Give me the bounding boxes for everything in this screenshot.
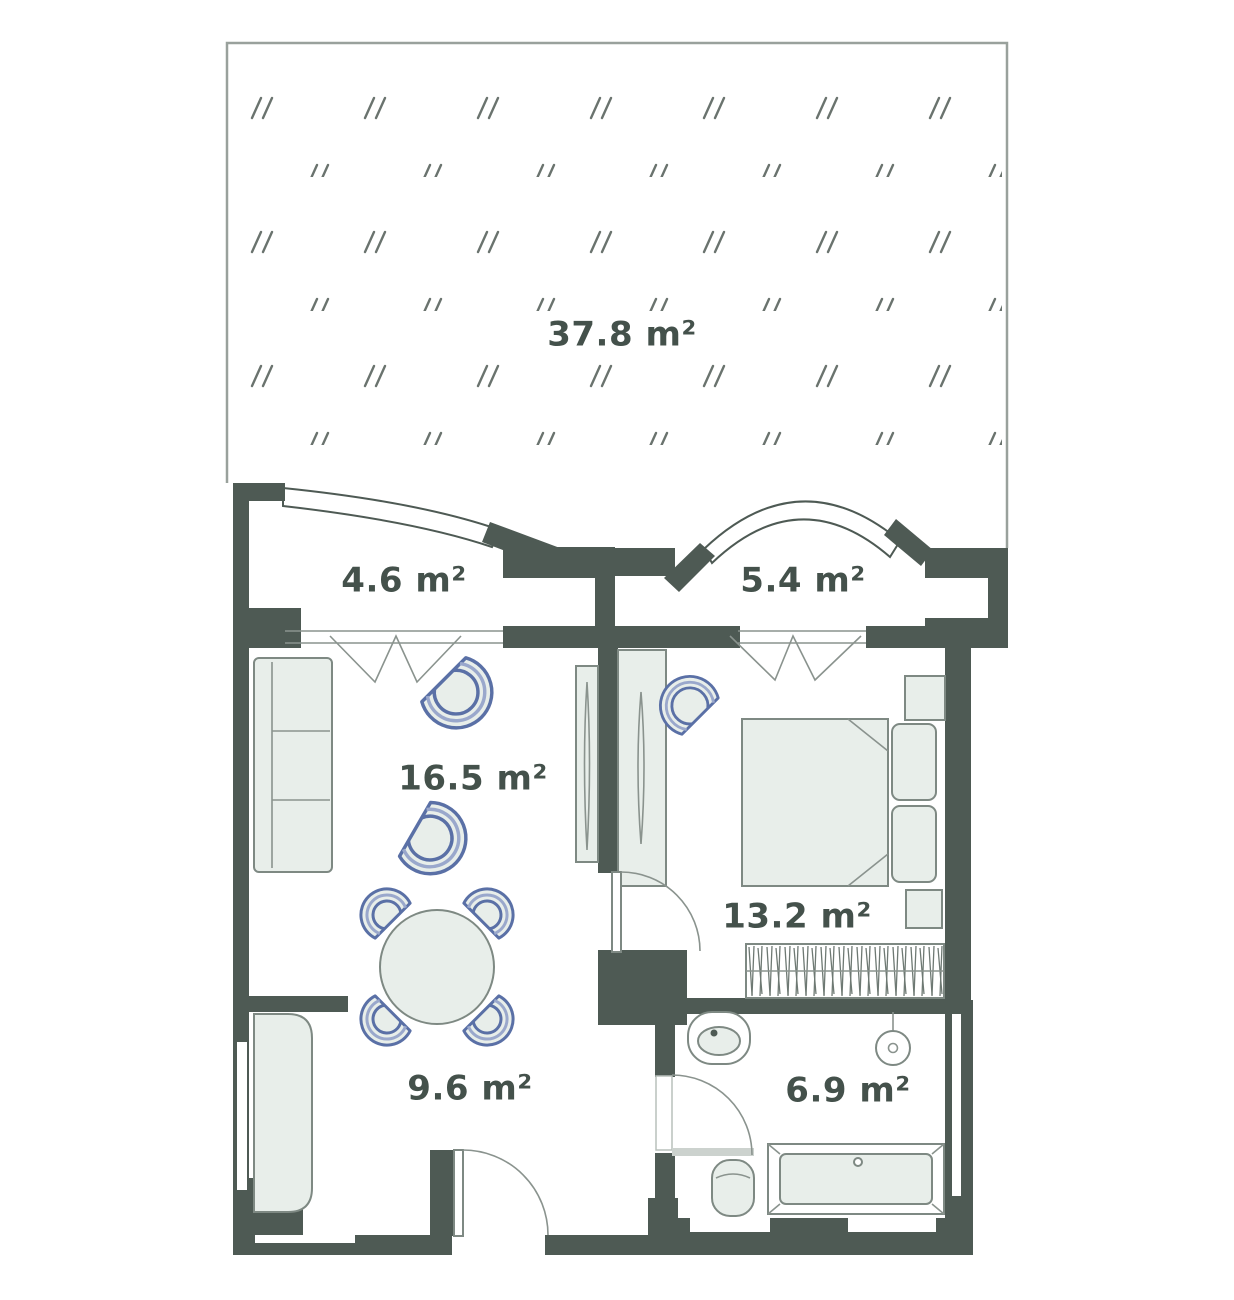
double-bed — [742, 719, 888, 886]
living-room-furniture — [254, 655, 524, 1056]
left-balcony-railing — [283, 488, 500, 547]
shower — [876, 1012, 910, 1065]
wall-recess — [690, 1218, 770, 1232]
balcony-right-area-label: 5.4 m² — [740, 561, 865, 601]
bedroom-furniture — [648, 664, 945, 998]
bathtub — [768, 1144, 944, 1214]
bathroom-area-label: 6.9 m² — [785, 1071, 910, 1111]
balcony-left-area-label: 4.6 m² — [341, 561, 466, 601]
nightstand — [906, 890, 942, 928]
wardrobe — [618, 650, 666, 886]
bedroom-window — [730, 631, 866, 680]
pillow — [892, 724, 936, 800]
bathroom-fixtures — [688, 1012, 944, 1216]
bathroom-door — [656, 1075, 754, 1156]
garden-hatch — [232, 48, 1002, 480]
armchair — [419, 655, 507, 743]
wall-recess — [848, 1218, 936, 1232]
dining-set — [350, 878, 524, 1056]
garden-area-label: 37.8 m² — [547, 315, 697, 355]
armchair — [397, 799, 479, 887]
kitchen-furniture — [254, 1014, 312, 1212]
entrance-door — [454, 1150, 548, 1236]
sink — [688, 1012, 750, 1064]
kitchen-counter — [254, 1014, 312, 1212]
wall-recess — [952, 1014, 961, 1196]
garden-area — [227, 43, 1007, 548]
nightstand — [905, 676, 945, 720]
floor-plan: 37.8 m² 4.6 m² 5.4 m² 16.5 m² 13.2 m² 9.… — [0, 0, 1234, 1300]
right-balcony-arched-railing — [704, 501, 900, 563]
hall-wardrobes — [576, 650, 666, 886]
dining-table — [380, 910, 494, 1024]
wall-recess — [255, 1235, 355, 1243]
living-room-area-label: 16.5 m² — [398, 759, 548, 799]
bedroom-area-label: 13.2 m² — [722, 897, 872, 937]
sofa — [254, 658, 332, 872]
floor-plan-drawing: 37.8 m² 4.6 m² 5.4 m² 16.5 m² 13.2 m² 9.… — [0, 0, 1234, 1300]
clothes-rail-wardrobe — [746, 944, 944, 998]
pillow — [892, 806, 936, 882]
toilet — [712, 1160, 754, 1216]
kitchen-area-label: 9.6 m² — [407, 1069, 532, 1109]
wall-recess — [237, 1042, 247, 1190]
